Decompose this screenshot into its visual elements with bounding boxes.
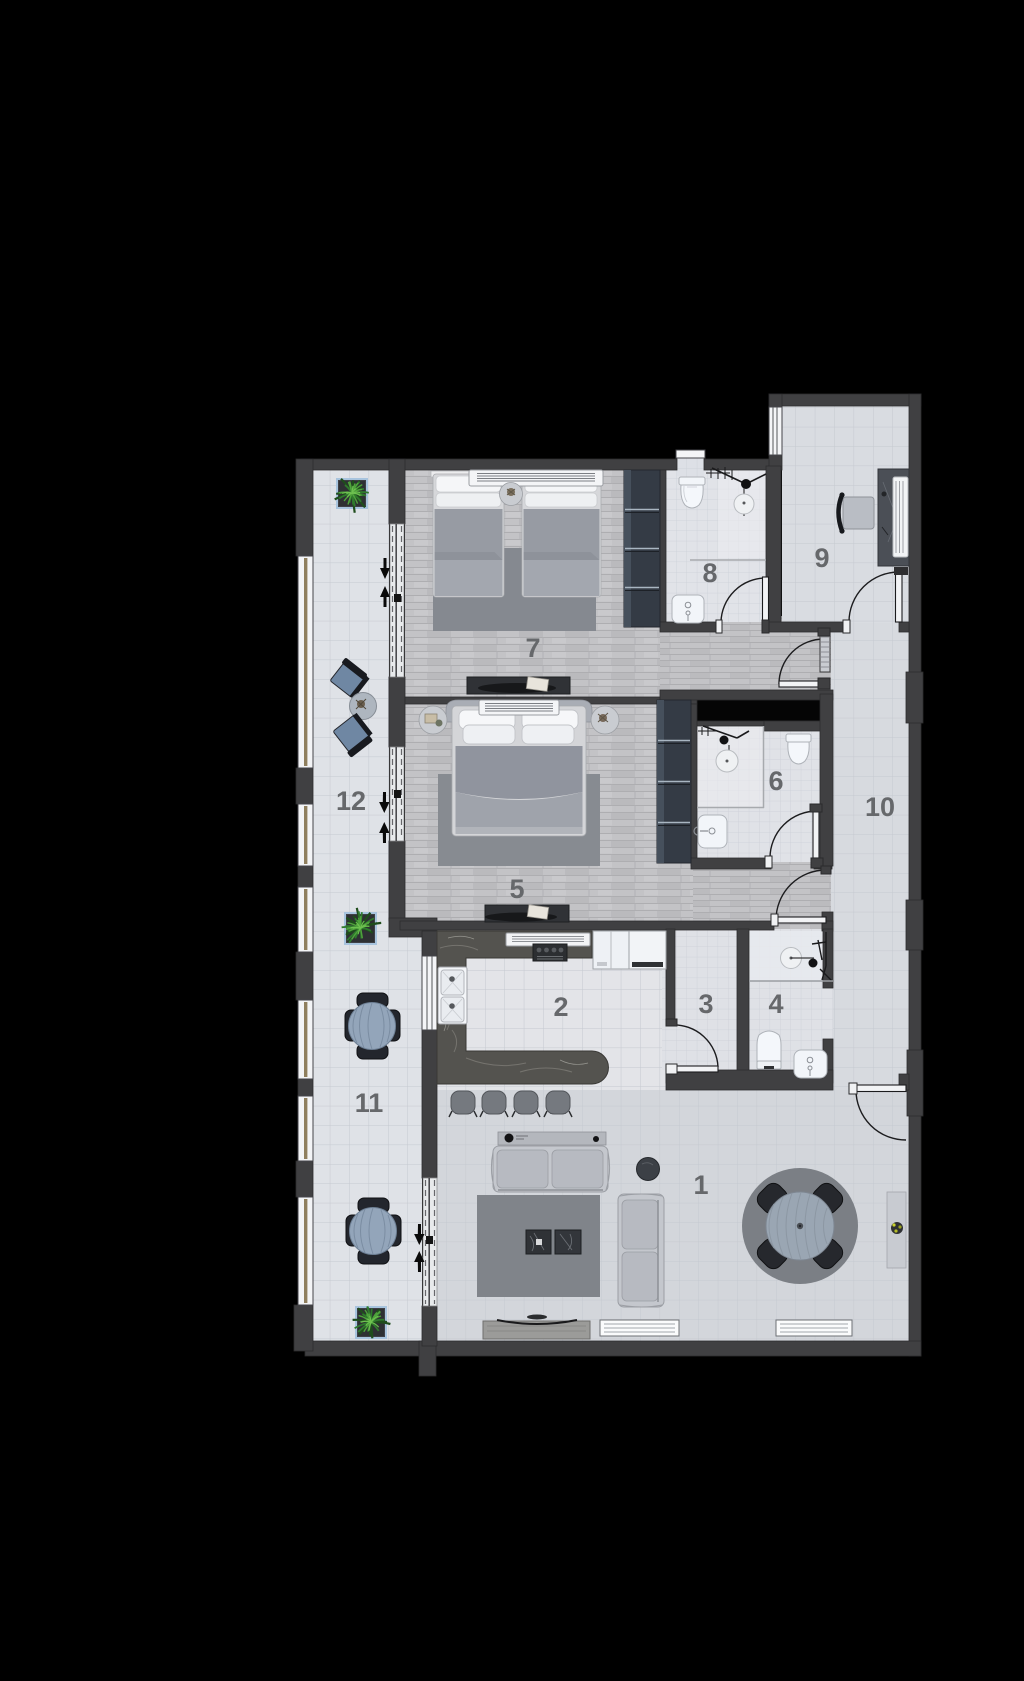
svg-text:11: 11: [355, 1088, 384, 1118]
svg-text:1: 1: [693, 1170, 708, 1200]
svg-text:4: 4: [768, 989, 783, 1019]
svg-text:7: 7: [525, 633, 540, 663]
svg-text:5: 5: [509, 874, 524, 904]
svg-text:3: 3: [698, 989, 713, 1019]
svg-text:9: 9: [814, 543, 829, 573]
svg-text:12: 12: [336, 786, 366, 816]
svg-text:2: 2: [553, 992, 568, 1022]
svg-text:6: 6: [768, 766, 783, 796]
svg-text:8: 8: [702, 558, 717, 588]
svg-text:10: 10: [865, 792, 895, 822]
